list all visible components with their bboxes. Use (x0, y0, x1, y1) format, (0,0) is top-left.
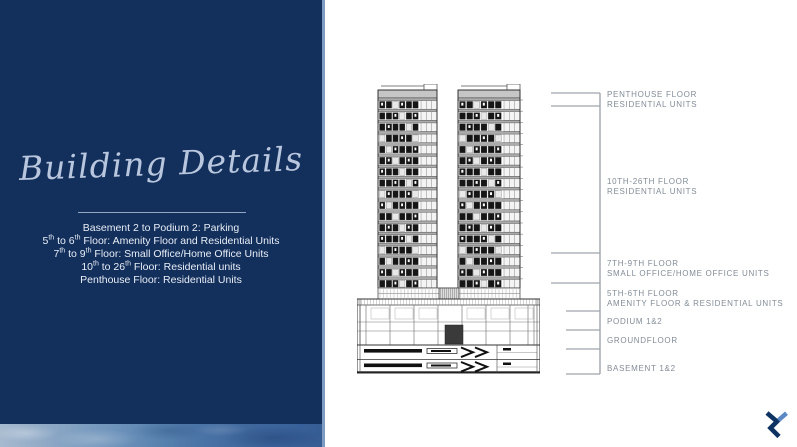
floor-label-line: SMALL OFFICE/HOME OFFICE UNITS (607, 269, 770, 279)
left-panel: Building Details Basement 2 to Podium 2:… (0, 0, 322, 447)
floor-label-line: AMENITY FLOOR & RESIDENTIAL UNITS (607, 299, 783, 309)
floor-label-basement: BASEMENT 1&2 (607, 364, 676, 374)
leader-lines (545, 88, 607, 380)
floor-label-10th-26th: 10TH-26TH FLOOR RESIDENTIAL UNITS (607, 177, 697, 196)
watercolor-strip (0, 424, 325, 447)
floor-summary-list: Basement 2 to Podium 2: Parking5th to 6t… (0, 222, 322, 287)
floor-info-line: Penthouse Floor: Residential Units (0, 274, 322, 287)
floor-label-penthouse: PENTHOUSE FLOOR RESIDENTIAL UNITS (607, 90, 697, 109)
floor-label-line: 5TH-6TH FLOOR (607, 289, 783, 299)
floor-label-line: GROUNDFLOOR (607, 336, 678, 346)
building-elevation-drawing (357, 84, 540, 375)
brand-logo-icon (764, 411, 790, 441)
floor-label-line: RESIDENTIAL UNITS (607, 187, 697, 197)
floor-label-groundfloor: GROUNDFLOOR (607, 336, 678, 346)
floor-label-line: PODIUM 1&2 (607, 317, 662, 327)
floor-label-line: 7TH-9TH FLOOR (607, 259, 770, 269)
floor-label-line: PENTHOUSE FLOOR (607, 90, 697, 100)
floor-label-line: RESIDENTIAL UNITS (607, 100, 697, 110)
slide: Building Details Basement 2 to Podium 2:… (0, 0, 797, 447)
title-divider (78, 212, 246, 213)
floor-label-7th-9th: 7TH-9TH FLOOR SMALL OFFICE/HOME OFFICE U… (607, 259, 770, 278)
elevation-area: PENTHOUSE FLOOR RESIDENTIAL UNITS 10TH-2… (325, 0, 797, 447)
floor-label-podium: PODIUM 1&2 (607, 317, 662, 327)
floor-info-line: Basement 2 to Podium 2: Parking (0, 222, 322, 235)
page-title: Building Details (0, 138, 323, 188)
floor-info-line: 7th to 9th Floor: Small Office/Home Offi… (0, 248, 322, 261)
floor-label-line: 10TH-26TH FLOOR (607, 177, 697, 187)
floor-label-5th-6th: 5TH-6TH FLOOR AMENITY FLOOR & RESIDENTIA… (607, 289, 783, 308)
floor-info-line: 10th to 26th Floor: Residential units (0, 261, 322, 274)
floor-label-line: BASEMENT 1&2 (607, 364, 676, 374)
floor-info-line: 5th to 6th Floor: Amenity Floor and Resi… (0, 235, 322, 248)
